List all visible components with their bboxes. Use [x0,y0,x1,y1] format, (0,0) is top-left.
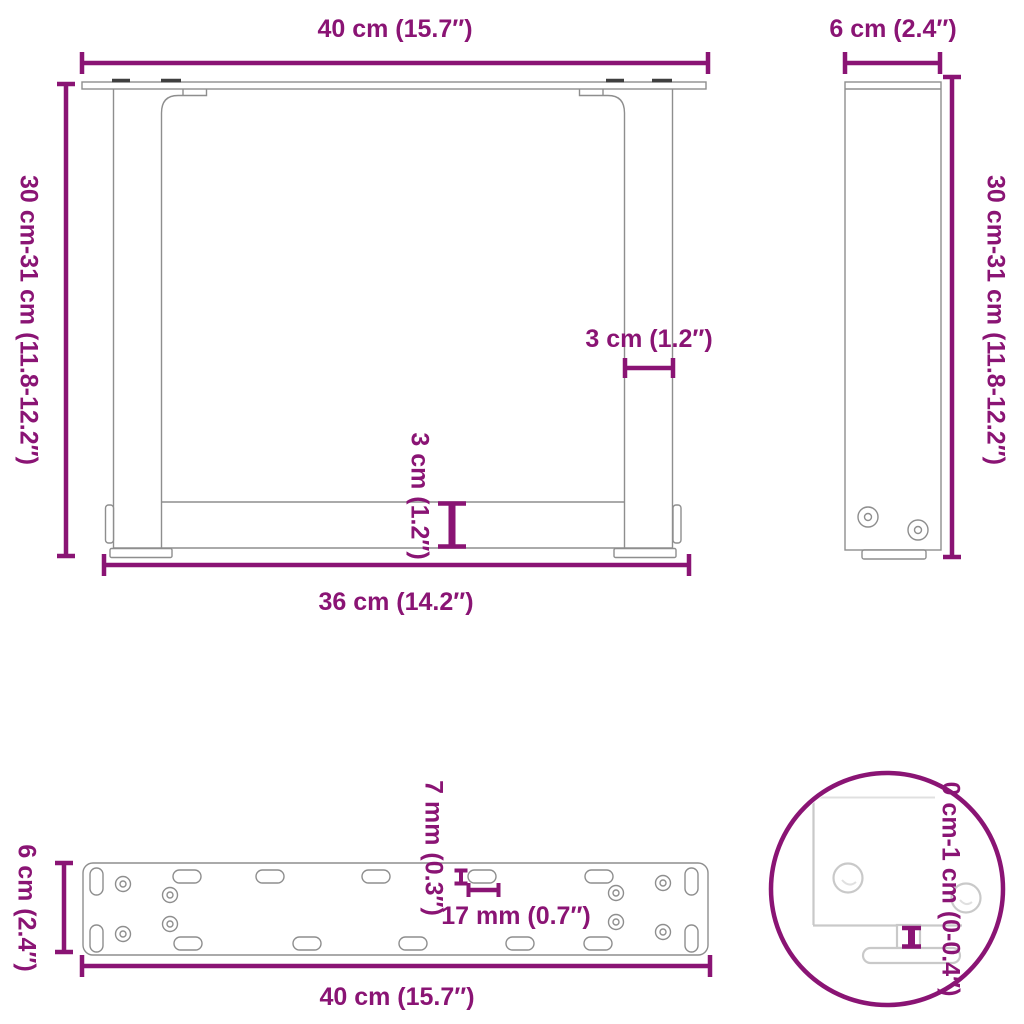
front-leg-width-dimension: 3 cm (1.2″) [585,325,712,378]
plate-drawing [83,863,708,955]
plate-left-depth-dimension: 6 cm (2.4″) [12,844,73,971]
front-left-height-label: 30 cm-31 cm (11.8-12.2″) [14,175,42,465]
detail-adjust-label: 0 cm-1 cm (0-0.4″) [936,782,964,997]
plate-bottom-width-dimension: 40 cm (15.7″) [82,955,710,1011]
plate-top-view: 6 cm (2.4″) [12,780,710,1011]
front-bottom-width-dimension: 36 cm (14.2″) [104,554,689,616]
left-side-clip [106,505,114,543]
front-left-height-dimension: 30 cm-31 cm (11.8-12.2″) [14,84,75,556]
plate-left-depth-label: 6 cm (2.4″) [12,844,40,971]
plate-bottom-width-label: 40 cm (15.7″) [319,983,474,1011]
dimension-diagram: 40 cm (15.7″) 30 cm-31 cm (11.8-12.2″) [0,0,1024,1024]
detail-view: 0 cm-1 cm (0-0.4″) [771,773,1003,1005]
side-view: 6 cm (2.4″) 30 cm-31 cm (11.8-12.2″) [829,15,1009,559]
side-right-height-dimension: 30 cm-31 cm (11.8-12.2″) [943,77,1009,557]
front-mounting-plate [82,82,706,89]
plate-slot-height-label: 7 mm (0.3″) [419,780,447,916]
side-top-depth-label: 6 cm (2.4″) [829,15,956,43]
front-leg-drawing [82,81,706,558]
front-leg-width-label: 3 cm (1.2″) [585,325,712,353]
side-leg-drawing [845,82,941,559]
right-side-clip [673,505,681,543]
plate-slot-width-label: 17 mm (0.7″) [441,902,591,930]
front-top-width-label: 40 cm (15.7″) [317,15,472,43]
plate-body [83,863,708,955]
side-foot-pad [862,550,926,559]
detail-circle [771,773,1003,1005]
front-bar-height-label: 3 cm (1.2″) [405,432,433,559]
side-top-depth-dimension: 6 cm (2.4″) [829,15,956,74]
right-foot-pad [614,549,676,558]
front-top-width-dimension: 40 cm (15.7″) [82,15,708,74]
left-foot-pad [110,549,172,558]
front-bottom-width-label: 36 cm (14.2″) [318,588,473,616]
right-leg-inner-edge [580,89,625,548]
left-leg-inner-edge [162,89,207,548]
side-leg-body [845,82,941,550]
front-view: 40 cm (15.7″) 30 cm-31 cm (11.8-12.2″) [14,15,712,616]
side-right-height-label: 30 cm-31 cm (11.8-12.2″) [981,175,1009,465]
diagram-svg: 40 cm (15.7″) 30 cm-31 cm (11.8-12.2″) [0,0,1024,1024]
front-bar-height-dimension: 3 cm (1.2″) [405,432,466,559]
